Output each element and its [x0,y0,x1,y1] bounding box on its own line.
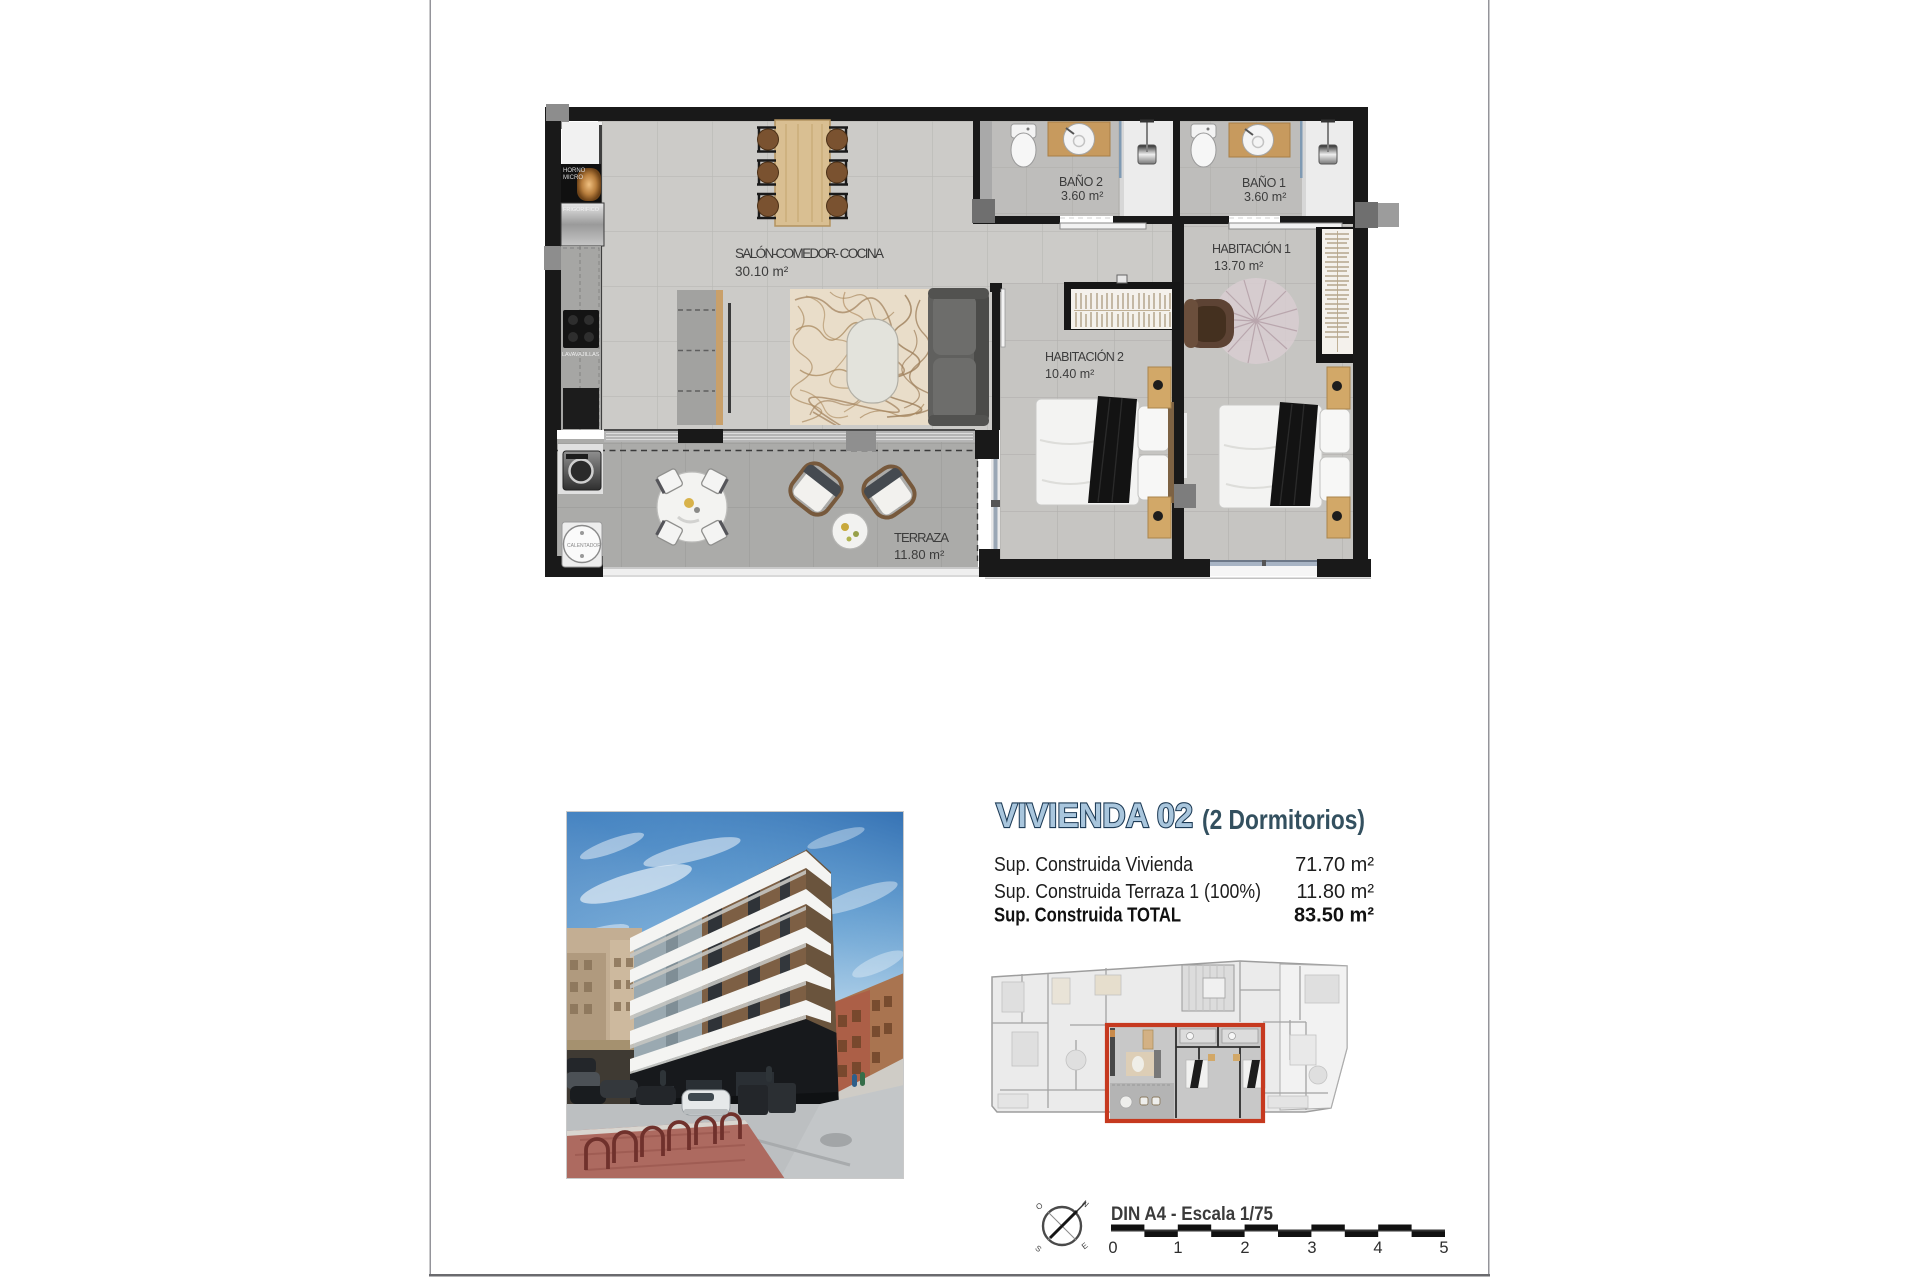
svg-text:HABITACIÓN 2: HABITACIÓN 2 [1045,349,1124,364]
svg-text:1: 1 [1173,1239,1182,1257]
svg-text:30.10 m²: 30.10 m² [735,264,789,279]
svg-text:71.70 m²: 71.70 m² [1295,854,1374,876]
svg-text:CALENTADOR: CALENTADOR [567,543,601,549]
svg-text:3.60 m²: 3.60 m² [1244,190,1286,204]
svg-text:BAÑO 1: BAÑO 1 [1242,176,1286,190]
svg-text:DIN A4 - Escala 1/75: DIN A4 - Escala 1/75 [1111,1203,1273,1225]
svg-text:0: 0 [1108,1239,1117,1257]
svg-text:Sup. Construida Vivienda: Sup. Construida Vivienda [994,854,1194,876]
svg-text:13.70 m²: 13.70 m² [1214,259,1263,273]
svg-text:Sup. Construida Terraza 1 (100: Sup. Construida Terraza 1 (100%) [994,881,1261,903]
svg-text:HORNO: HORNO [563,168,586,174]
svg-text:Sup. Construida TOTAL: Sup. Construida TOTAL [994,905,1181,927]
svg-text:3: 3 [1307,1239,1316,1257]
svg-text:3.60 m²: 3.60 m² [1061,189,1103,203]
svg-text:(2 Dormitorios): (2 Dormitorios) [1202,804,1365,835]
svg-text:FRIGORIFICO: FRIGORIFICO [563,207,600,213]
svg-text:HABITACIÓN 1: HABITACIÓN 1 [1212,241,1291,256]
svg-text:5: 5 [1439,1239,1448,1257]
svg-text:TERRAZA: TERRAZA [894,530,949,545]
svg-text:4: 4 [1373,1239,1382,1257]
svg-text:BAÑO 2: BAÑO 2 [1059,175,1103,189]
svg-text:11.80 m²: 11.80 m² [1297,881,1375,903]
svg-text:11.80 m²: 11.80 m² [894,547,945,562]
svg-text:10.40 m²: 10.40 m² [1045,367,1094,381]
svg-text:83.50 m²: 83.50 m² [1294,905,1374,927]
svg-text:MICRO: MICRO [563,175,583,181]
svg-text:VIVIENDA 02: VIVIENDA 02 [996,797,1193,835]
svg-text:LAVAVAJILLAS: LAVAVAJILLAS [562,352,600,358]
svg-text:2: 2 [1240,1239,1249,1257]
svg-text:SALÓN-COMEDOR- COCINA: SALÓN-COMEDOR- COCINA [735,246,884,261]
